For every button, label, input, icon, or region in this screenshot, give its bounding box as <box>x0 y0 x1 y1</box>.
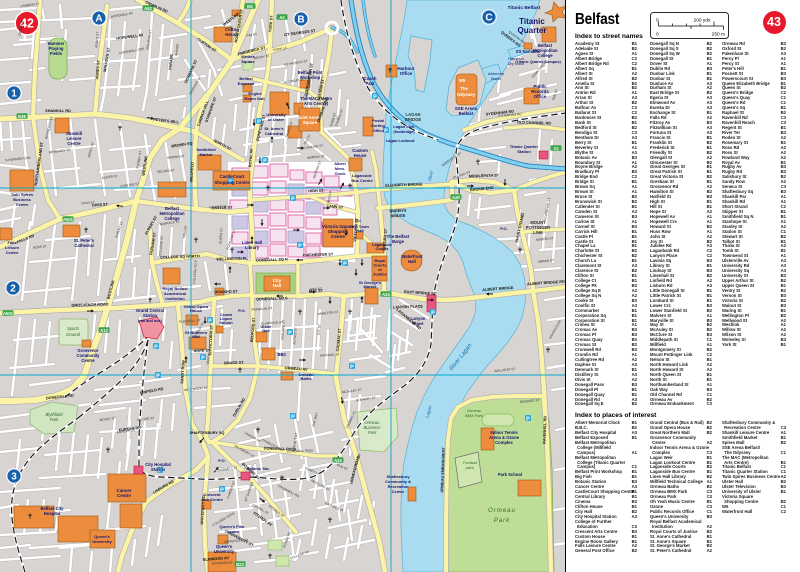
svg-text:Office: Office <box>372 128 384 133</box>
svg-text:(footbridge): (footbridge) <box>393 130 415 134</box>
svg-text:P: P <box>156 373 160 379</box>
svg-text:Centre: Centre <box>331 234 345 239</box>
svg-text:250 m: 250 m <box>712 32 725 38</box>
svg-text:SHAFTESBURY SQ: SHAFTESBURY SQ <box>190 431 225 435</box>
svg-text:Exposed: Exposed <box>238 81 255 86</box>
svg-text:P: P <box>220 487 224 493</box>
svg-text:B: B <box>297 14 304 25</box>
svg-text:A12: A12 <box>100 328 108 333</box>
svg-text:A24: A24 <box>382 292 390 297</box>
svg-text:BRIDGE: BRIDGE <box>391 214 406 219</box>
svg-text:House: House <box>354 153 367 158</box>
svg-text:Park: Park <box>368 430 378 435</box>
svg-text:Ormeau: Ormeau <box>488 508 516 514</box>
svg-text:P: P <box>288 330 292 336</box>
svg-text:Park: Park <box>50 417 60 422</box>
svg-text:(rail and bus): (rail and bus) <box>138 319 163 323</box>
svg-text:P: P <box>298 243 302 249</box>
svg-text:Room Gall.: Room Gall. <box>244 96 265 101</box>
svg-text:Quarter: Quarter <box>518 26 547 35</box>
svg-text:Odyssey: Odyssey <box>457 92 476 97</box>
svg-text:SHANKILL RD: SHANKILL RD <box>45 109 71 113</box>
svg-text:Institution: Institution <box>165 296 185 301</box>
svg-text:Cathedral: Cathedral <box>74 243 93 248</box>
svg-text:A501: A501 <box>63 217 74 222</box>
svg-text:W5: W5 <box>459 78 466 83</box>
svg-text:P.O.: P.O. <box>218 458 226 463</box>
svg-text:Park: Park <box>365 81 375 86</box>
svg-text:Lagan Lookout: Lagan Lookout <box>386 138 415 143</box>
svg-text:200 yds: 200 yds <box>694 18 711 24</box>
svg-text:C: C <box>485 12 492 23</box>
svg-text:Library: Library <box>245 245 260 250</box>
svg-text:Market: Market <box>364 284 378 289</box>
svg-text:Shopping Centre: Shopping Centre <box>214 180 250 185</box>
svg-text:Barge: Barge <box>392 239 405 244</box>
svg-text:The: The <box>460 86 468 91</box>
svg-text:P: P <box>201 355 205 361</box>
svg-text:Park School: Park School <box>498 472 522 477</box>
svg-text:P: P <box>291 196 295 202</box>
svg-text:Ground: Ground <box>66 332 81 337</box>
svg-text:B23: B23 <box>236 562 244 567</box>
svg-text:P: P <box>343 261 347 267</box>
svg-text:Centre: Centre <box>6 250 19 255</box>
svg-text:MAY ST: MAY ST <box>310 287 322 291</box>
svg-text:P.O.: P.O. <box>500 226 508 231</box>
svg-text:Lagan Weir: Lagan Weir <box>393 124 415 129</box>
svg-text:Dry Dock: Dry Dock <box>508 61 525 66</box>
svg-text:pitch: pitch <box>465 465 475 470</box>
svg-text:P: P <box>208 318 212 324</box>
svg-text:P: P <box>384 128 388 134</box>
svg-text:0: 0 <box>656 32 659 38</box>
svg-text:HIGH ST: HIGH ST <box>308 189 324 194</box>
svg-text:BMX Park: BMX Park <box>465 413 484 418</box>
svg-text:Station: Station <box>517 149 531 154</box>
svg-text:A2: A2 <box>279 15 285 20</box>
svg-text:Fields: Fields <box>50 51 63 56</box>
svg-text:of Ulster: of Ulster <box>268 117 285 122</box>
svg-text:Centre: Centre <box>16 202 29 207</box>
svg-text:Cathedral: Cathedral <box>265 131 283 136</box>
svg-text:P: P <box>291 414 295 420</box>
svg-text:A20: A20 <box>452 195 460 200</box>
svg-text:Saloon: Saloon <box>219 320 233 325</box>
svg-text:LINK: LINK <box>533 230 543 235</box>
svg-text:CastleCourt: CastleCourt <box>220 174 245 179</box>
svg-text:3: 3 <box>11 471 17 482</box>
svg-text:P: P <box>154 344 158 350</box>
svg-text:Centre: Centre <box>67 141 81 146</box>
svg-text:Hospital: Hospital <box>44 511 61 516</box>
svg-text:Park: Park <box>494 518 510 524</box>
svg-text:Hall: Hall <box>262 328 269 333</box>
svg-text:Office: Office <box>400 71 413 76</box>
svg-text:M2: M2 <box>247 4 253 9</box>
svg-text:Bus Centre: Bus Centre <box>351 178 373 183</box>
svg-text:Sports: Sports <box>67 326 80 331</box>
svg-text:P: P <box>526 416 530 422</box>
svg-text:Square: Square <box>303 120 318 125</box>
svg-text:University: University <box>92 539 112 544</box>
svg-text:1: 1 <box>11 88 17 99</box>
svg-text:CASTLE ST: CASTLE ST <box>209 205 227 210</box>
svg-text:BRUCE ST: BRUCE ST <box>224 361 244 366</box>
svg-text:A: A <box>95 13 102 24</box>
svg-text:Office: Office <box>534 94 547 99</box>
svg-text:HOWARD ST: HOWARD ST <box>214 290 238 295</box>
svg-text:University: University <box>214 549 235 554</box>
svg-text:Justice: Justice <box>373 272 388 277</box>
svg-text:P: P <box>431 310 435 316</box>
svg-text:Baths: Baths <box>300 376 312 381</box>
svg-text:Complex: Complex <box>495 440 513 445</box>
svg-text:B38: B38 <box>18 114 26 119</box>
svg-text:Centre: Centre <box>117 493 131 498</box>
svg-text:QUEEN'S: QUEEN'S <box>389 209 407 214</box>
svg-text:Clock: Clock <box>335 171 347 176</box>
svg-text:Basin: Basin <box>491 76 502 81</box>
svg-text:BRIDGE: BRIDGE <box>405 117 421 122</box>
svg-text:P: P <box>350 364 354 370</box>
svg-text:SS Nomadic: SS Nomadic <box>516 49 541 54</box>
svg-text:2: 2 <box>10 283 16 294</box>
svg-text:Centre: Centre <box>392 489 405 494</box>
svg-text:House: House <box>190 308 203 313</box>
svg-text:P: P <box>373 94 377 100</box>
svg-text:Station: Station <box>151 467 166 472</box>
svg-text:Hall: Hall <box>408 259 416 264</box>
svg-text:Belfast: Belfast <box>459 111 474 116</box>
svg-text:A2: A2 <box>553 146 559 151</box>
svg-text:Market: Market <box>200 152 214 157</box>
svg-text:Titanic Belfast: Titanic Belfast <box>508 5 541 11</box>
svg-text:Centre: Centre <box>81 358 95 363</box>
svg-text:P: P <box>263 158 267 164</box>
svg-text:BBC: BBC <box>277 352 286 357</box>
svg-text:A501: A501 <box>3 311 14 316</box>
svg-text:Station: Station <box>143 313 158 318</box>
svg-text:Titanic: Titanic <box>519 17 545 26</box>
svg-text:P.O.: P.O. <box>238 308 246 313</box>
svg-text:Hall: Hall <box>273 283 281 288</box>
